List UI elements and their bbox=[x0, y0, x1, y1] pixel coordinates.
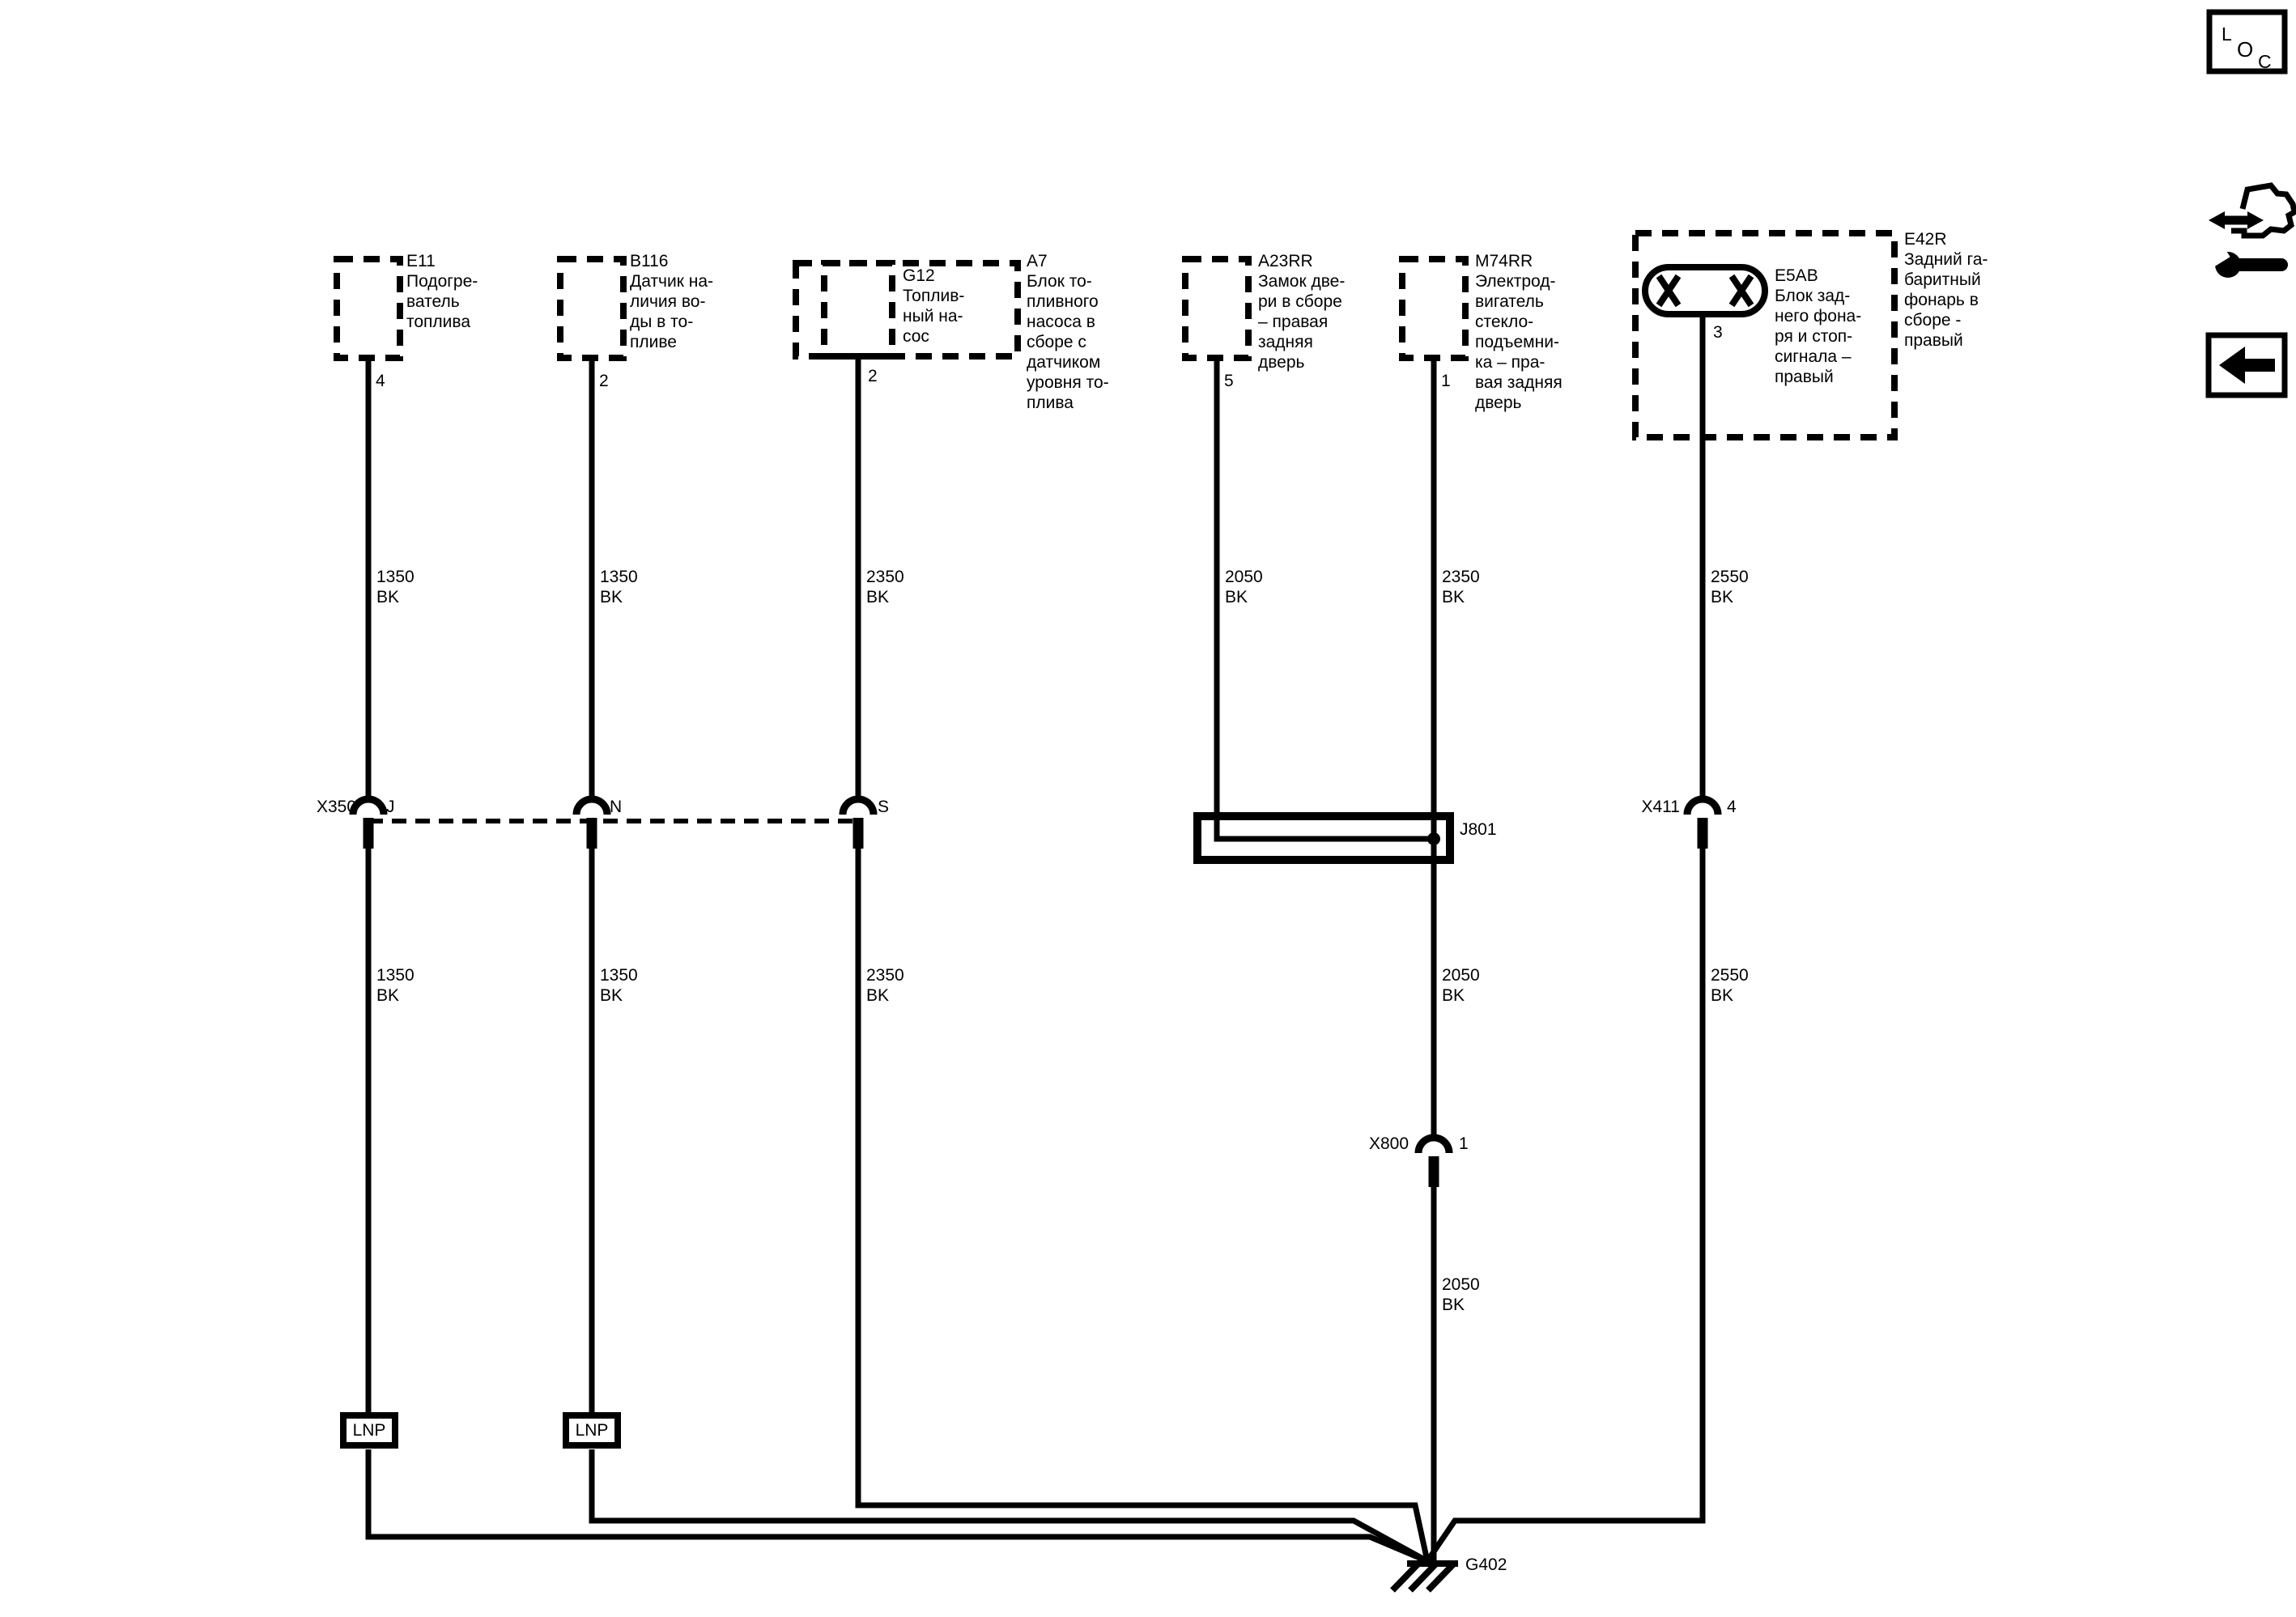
component-desc: Электрод- вигатель стекло- подъемни- ка … bbox=[1475, 271, 1563, 413]
connector-pin-x800: 1 bbox=[1459, 1134, 1469, 1154]
wire-g12-ground bbox=[858, 356, 1427, 1561]
component-id: E11 bbox=[406, 251, 478, 271]
pin-number-m74rr: 1 bbox=[1441, 371, 1451, 391]
inline-box-lnp-1: LNP bbox=[340, 1412, 398, 1449]
loc-button[interactable]: L O C bbox=[2209, 12, 2285, 72]
connector-pin-j: J bbox=[386, 797, 395, 817]
component-desc: Задний га- баритный фонарь в сборе - пра… bbox=[1904, 249, 1988, 351]
connector-pin-s: S bbox=[878, 797, 889, 817]
loc-letter-o: O bbox=[2237, 37, 2253, 62]
lnp-label: LNP bbox=[576, 1421, 609, 1440]
connector-arc-x350-n bbox=[576, 799, 607, 815]
arrow-right-head bbox=[2247, 211, 2264, 229]
wire-label: 2550 BK bbox=[1711, 965, 1749, 1006]
connector-blades bbox=[364, 818, 1708, 1187]
wire-label: 1350 BK bbox=[376, 567, 415, 607]
ground-label-g402: G402 bbox=[1465, 1555, 1507, 1575]
wire-e42r-ground bbox=[1427, 314, 1703, 1561]
wiring-diagram-page: L O C E11 Подогре- ватель топлива B1 bbox=[0, 0, 2296, 1617]
component-boxes bbox=[337, 233, 1894, 437]
connector-arc-x350-j bbox=[353, 799, 384, 815]
pin-number-g12: 2 bbox=[868, 366, 878, 386]
wire-label: 2350 BK bbox=[1442, 567, 1480, 607]
component-label-e42r: E42R Задний га- баритный фонарь в сборе … bbox=[1904, 229, 1988, 351]
connector-label-x411: X411 bbox=[1611, 797, 1680, 817]
wrench-icon bbox=[2204, 245, 2281, 278]
wire-label: 2050 BK bbox=[1442, 965, 1480, 1006]
component-id: E42R bbox=[1904, 229, 1988, 249]
loc-letter-c: C bbox=[2258, 51, 2272, 72]
arrow-left-head bbox=[2209, 211, 2225, 229]
component-label-g12: G12 Топлив- ный на- сос bbox=[903, 266, 964, 347]
connector-label-x800: X800 bbox=[1340, 1134, 1409, 1154]
lnp-label: LNP bbox=[353, 1421, 386, 1440]
component-desc: Подогре- ватель топлива bbox=[406, 271, 478, 332]
back-arrow-icon bbox=[2219, 347, 2275, 384]
wire-b116-ground bbox=[592, 358, 1427, 1561]
component-label-m74rr: M74RR Электрод- вигатель стекло- подъемн… bbox=[1475, 251, 1563, 413]
wire-label: 2050 BK bbox=[1442, 1274, 1480, 1315]
component-id: M74RR bbox=[1475, 251, 1563, 271]
component-desc: Замок две- ри в сборе – правая задняя дв… bbox=[1258, 271, 1345, 372]
component-id: B116 bbox=[630, 251, 713, 271]
component-label-a23rr: A23RR Замок две- ри в сборе – правая зад… bbox=[1258, 251, 1345, 372]
lamp-symbol-e5ab bbox=[1645, 267, 1765, 314]
connector-label-x350: X350 bbox=[287, 797, 356, 817]
wire-label: 1350 BK bbox=[600, 965, 638, 1006]
wire-label: 2550 BK bbox=[1711, 567, 1749, 607]
component-id: G12 bbox=[903, 266, 964, 286]
component-desc: Блок то- пливного насоса в сборе с датчи… bbox=[1027, 271, 1109, 413]
ground-symbol-g402 bbox=[1392, 1560, 1458, 1590]
vehicle-outline-icon bbox=[2231, 185, 2294, 236]
component-box-g12 bbox=[824, 263, 892, 356]
connector-arc-x800 bbox=[1418, 1138, 1449, 1153]
component-id: A23RR bbox=[1258, 251, 1345, 271]
connector-arc-x350-s bbox=[843, 799, 874, 815]
inline-box-lnp-2: LNP bbox=[563, 1412, 621, 1449]
component-box-m74rr bbox=[1402, 259, 1465, 358]
pin-number-e5ab: 3 bbox=[1713, 322, 1723, 343]
wire-label: 2350 BK bbox=[866, 567, 904, 607]
component-id: E5AB bbox=[1775, 266, 1861, 286]
connector-arc-x411 bbox=[1687, 799, 1718, 815]
loc-letter-l: L bbox=[2222, 23, 2232, 45]
wire-label: 2350 BK bbox=[866, 965, 904, 1006]
component-desc: Топлив- ный на- сос bbox=[903, 286, 964, 347]
pin-number-a23rr: 5 bbox=[1224, 371, 1234, 391]
wire-e11-ground bbox=[368, 358, 1427, 1561]
service-info-icon[interactable] bbox=[2204, 185, 2294, 278]
component-label-b116: B116 Датчик на- личия во- ды в то- пливе bbox=[630, 251, 713, 352]
wire-label: 1350 BK bbox=[376, 965, 415, 1006]
component-box-e11 bbox=[337, 259, 400, 358]
component-desc: Блок зад- него фона- ря и стоп- сигнала … bbox=[1775, 286, 1861, 387]
splice-junction-dot bbox=[1427, 832, 1440, 845]
component-label-e5ab: E5AB Блок зад- него фона- ря и стоп- сиг… bbox=[1775, 266, 1861, 387]
connector-pin-x411: 4 bbox=[1727, 797, 1737, 817]
connector-pin-n: N bbox=[610, 797, 622, 817]
pin-number-b116: 2 bbox=[599, 371, 609, 391]
bulb-housing-shape bbox=[1645, 267, 1765, 314]
wire-label: 1350 BK bbox=[600, 567, 638, 607]
component-box-b116 bbox=[560, 259, 623, 358]
bulb-filament-x-icon bbox=[1659, 276, 1751, 305]
back-button[interactable] bbox=[2209, 335, 2285, 395]
connector-arcs bbox=[353, 799, 1718, 1153]
pin-number-e11: 4 bbox=[376, 371, 385, 391]
wires bbox=[368, 314, 1703, 1561]
component-id: A7 bbox=[1027, 251, 1109, 271]
component-box-a23rr bbox=[1185, 259, 1248, 358]
component-label-e11: E11 Подогре- ватель топлива bbox=[406, 251, 478, 332]
wire-label: 2050 BK bbox=[1225, 567, 1263, 607]
splice-label-j801: J801 bbox=[1460, 819, 1497, 840]
component-desc: Датчик на- личия во- ды в то- пливе bbox=[630, 271, 713, 352]
component-label-a7: A7 Блок то- пливного насоса в сборе с да… bbox=[1027, 251, 1109, 413]
